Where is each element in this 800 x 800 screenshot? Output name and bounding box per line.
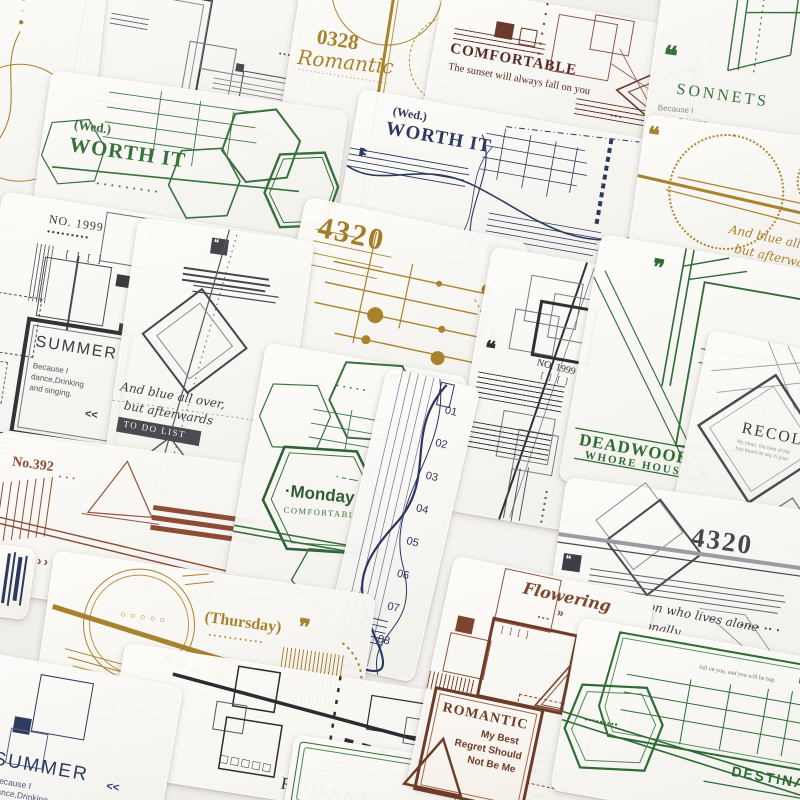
sticker-sheet-photo: ▪ ▪ ▪ [ ] [ ] ● · ● · ● IN DARK TO SHINE… [0, 0, 800, 800]
strip-number: 05 [405, 536, 420, 550]
sticker-barcode [0, 543, 37, 620]
strip-number: 03 [424, 471, 439, 485]
small-square-icon [455, 615, 475, 634]
quote-badge: ❝ [562, 553, 582, 572]
strip-number: 01 [444, 405, 459, 419]
caption-line: Because I [657, 104, 693, 115]
quote-icon: ❝ [661, 42, 679, 71]
strip-number: 04 [415, 503, 430, 517]
quote-icon: ❝ [564, 554, 571, 566]
strip-number: 07 [386, 601, 401, 615]
arrows-label: << [105, 781, 120, 795]
brackets-label: [ ] [ ] [500, 626, 531, 640]
strip-number: 08 [376, 634, 391, 648]
dot-column: ● · ● · ● [15, 0, 32, 30]
arrows-label: » [556, 606, 565, 620]
triangle-outline [399, 728, 476, 800]
strip-number: 02 [434, 438, 449, 452]
dashed-square [0, 356, 8, 403]
square-shape [31, 674, 94, 740]
strip-number: 06 [396, 569, 411, 583]
small-square-icon [235, 63, 244, 72]
square-shape [36, 257, 113, 327]
arrows-label: << [84, 409, 99, 422]
